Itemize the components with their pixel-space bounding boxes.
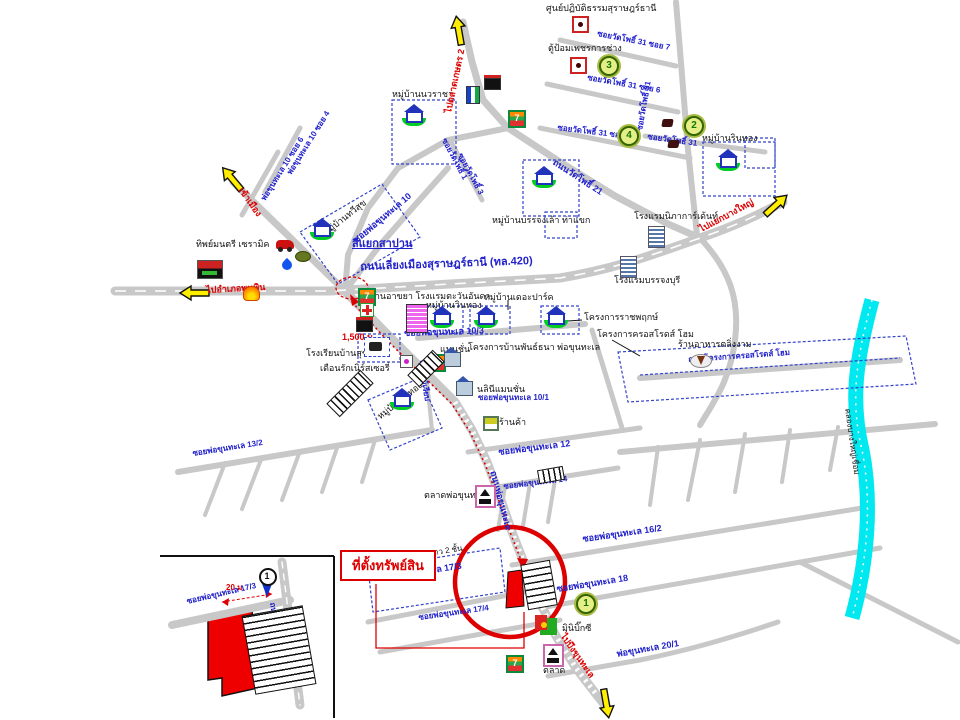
meditation-center-label: ศูนย์ปฏิบัติธรรมสุราษฎร์ธานี (546, 4, 656, 14)
circle-3: 3 (599, 56, 619, 76)
property-rows (520, 560, 558, 611)
seven-eleven-4 (506, 655, 524, 673)
circle-1: 1 (576, 594, 596, 614)
shop-dot-icon (400, 355, 413, 368)
inset-rows (242, 605, 317, 695)
nursery-label: เดือนรักเนิร์สเซอรี่ (320, 364, 390, 374)
banjonglao-label: หมู่บ้านบรรจงเล้า ท่าแขก (492, 216, 590, 226)
fuel-drop-icon (281, 257, 293, 271)
soi-13-2: ซอยพ่อขุนทะเล 13/2 (192, 439, 263, 459)
mini-bigc-icon (540, 618, 557, 635)
gas-sign-icon (466, 86, 480, 104)
thepark-label: หมู่บ้านเดอะปาร์ค (484, 293, 554, 303)
store-sign-icon (484, 78, 501, 90)
restaurant-icon (690, 354, 712, 368)
market-shrine-icon (475, 485, 496, 508)
lotus-sign-icon (197, 260, 223, 279)
inset-pin: 1 (258, 568, 276, 600)
fuel-blob-icon (295, 251, 311, 262)
village-thepark-icon (474, 310, 498, 328)
village-thawisuk-icon (310, 222, 334, 240)
soi-20-1: พ่อขุนทะเล 20/1 (616, 639, 680, 660)
shell-station-icon (243, 286, 260, 301)
circle-4: 4 (619, 126, 639, 146)
rowhouse-bar-2 (326, 370, 373, 417)
village-winthong-icon (430, 310, 454, 328)
nipha-garden-icon (648, 226, 665, 248)
nalini-mansion-icon (456, 381, 473, 396)
phanthana-label: โครงการบ้านพันธ์ธนา พ่อขุนทะเล (468, 343, 600, 353)
nawaracha-label: หมู่บ้านนวราชา (392, 90, 453, 100)
tawan-anda-hotel-icon (406, 304, 428, 333)
pokhunthale-10-soi-6: พ่อขุนทะเล 10 ซอย 6 (260, 136, 306, 203)
soi-18: ซอยพ่อขุนทะเล 18 (556, 574, 629, 595)
shop-label: ร้านค้า (499, 418, 526, 428)
village-rinthong-icon (716, 153, 740, 171)
ratchaphruek-label: โครงการราชพฤกษ์ (584, 313, 658, 323)
ceramic-shop-icon (276, 240, 294, 249)
to-market-label: ไปตลาดเกษตร 2 (444, 48, 467, 114)
police-box-icon (570, 57, 587, 74)
talat-label: ตลาด (543, 666, 565, 676)
soi-10-1: ซอยพ่อขุนทะเล 10/1 (478, 394, 549, 403)
shop-icon (483, 416, 499, 431)
property-label-box: ที่ตั้งทรัพย์สิน (340, 550, 436, 581)
house-mark-b (667, 140, 679, 148)
police-box-label: ตู้ป้อมเพชรการช่าง (548, 44, 622, 54)
store-sign-2-icon (356, 320, 373, 332)
village-nawaracha-icon (402, 108, 426, 126)
label-layer: ศูนย์ปฏิบัติธรรมสุราษฎร์ธานีตู้ป้อมเพชรก… (0, 0, 960, 720)
village-ratchaphruek-icon (544, 310, 568, 328)
bypass-label: ถนนเลี่ยงเมืองสุราษฎร์ธานี (ทล.420) (360, 255, 533, 273)
ceramic-label: ทิพย์มนตรี เซรามิค (196, 240, 269, 250)
siyaek-sapan: สี่แยกสาปาน (352, 238, 412, 250)
village-wangthong-icon (390, 392, 414, 410)
rinthong-label: หมู่บ้านรินทอง (702, 134, 758, 144)
property-location-map: ศูนย์ปฏิบัติธรรมสุราษฎร์ธานีตู้ป้อมเพชรก… (0, 0, 960, 720)
banjongburi-icon (620, 256, 637, 278)
seven-eleven-1 (508, 110, 526, 128)
house-mark-a (661, 119, 673, 127)
thanon-watpho-21: ถนนวัดโพธิ์ 21 (551, 158, 605, 198)
talingngam-label: ร้านอาหารตลิ่งงาม (678, 340, 751, 350)
pharmacy-icon (360, 303, 374, 317)
meditation-center-icon (572, 16, 589, 33)
mansion-icon (444, 352, 461, 367)
soi-16-2: ซอยพ่อขุนทะเล 16/2 (582, 524, 662, 545)
school-icon (364, 337, 390, 357)
inset-soi-label: ซอยพ่อขุนทะเล 17/3 (186, 582, 257, 607)
circle-2: 2 (684, 116, 704, 136)
soi-12: ซอยพ่อขุนทะเล 12 (498, 439, 571, 458)
soi-17-4: ซอยพ่อขุนทะเล 17/4 (418, 604, 489, 623)
village-banjonglao-icon (532, 170, 556, 188)
canal-label: คลองบางใหญ่เชื่อม (842, 408, 860, 475)
to-city-label: เข้าเมือง (236, 186, 263, 219)
talat-shrine-icon (543, 644, 564, 667)
